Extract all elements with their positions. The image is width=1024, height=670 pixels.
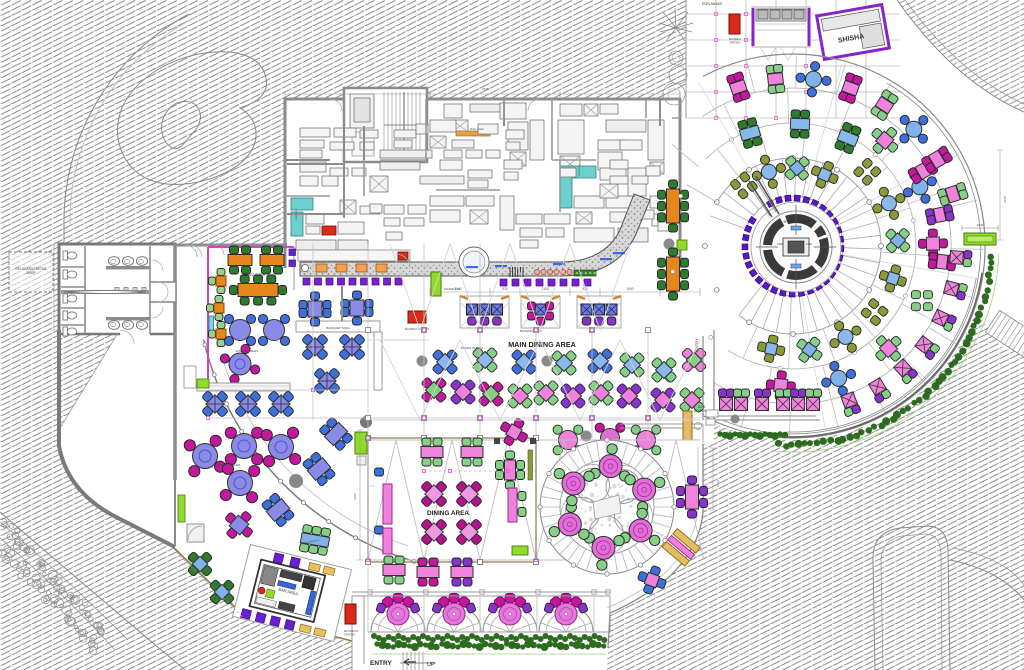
svg-text:SHOP: SHOP — [26, 271, 35, 275]
svg-text:2040: 2040 — [1003, 196, 1007, 203]
svg-text:MAITRE D: MAITRE D — [729, 37, 742, 41]
svg-text:530: 530 — [502, 287, 508, 291]
svg-text:WAITER STN: WAITER STN — [444, 287, 460, 291]
svg-text:DINING TABLES: DINING TABLES — [218, 463, 241, 467]
svg-text:1200: 1200 — [353, 493, 357, 500]
svg-text:DINING AREA: DINING AREA — [427, 510, 469, 517]
svg-text:DINING TABLES: DINING TABLES — [236, 349, 259, 353]
svg-text:STATION: STATION — [344, 633, 355, 637]
svg-text:BANQUET SOFA: BANQUET SOFA — [326, 326, 349, 330]
svg-text:MAITRE D3: MAITRE D3 — [344, 629, 358, 633]
svg-text:ESPLANADE: ESPLANADE — [702, 2, 723, 6]
svg-text:2040: 2040 — [977, 223, 984, 227]
svg-text:STATION: STATION — [730, 41, 741, 45]
svg-text:3440: 3440 — [626, 287, 633, 291]
svg-text:1300: 1300 — [806, 242, 812, 246]
svg-text:2100: 2100 — [541, 287, 548, 291]
svg-text:HIGHTOPS: HIGHTOPS — [247, 273, 265, 277]
svg-text:1300: 1300 — [777, 242, 783, 246]
svg-text:BOOTH: BOOTH — [694, 409, 707, 413]
svg-text:ENTRY: ENTRY — [370, 660, 392, 667]
svg-text:SPIRITS ON BAR: SPIRITS ON BAR — [783, 220, 809, 224]
svg-text:cold room: cold room — [294, 209, 298, 220]
svg-text:UP: UP — [427, 662, 435, 668]
svg-text:Dish wash: Dish wash — [470, 127, 484, 131]
svg-text:1579: 1579 — [716, 480, 720, 487]
svg-text:cold room: cold room — [577, 165, 581, 176]
svg-text:2579: 2579 — [482, 87, 489, 91]
